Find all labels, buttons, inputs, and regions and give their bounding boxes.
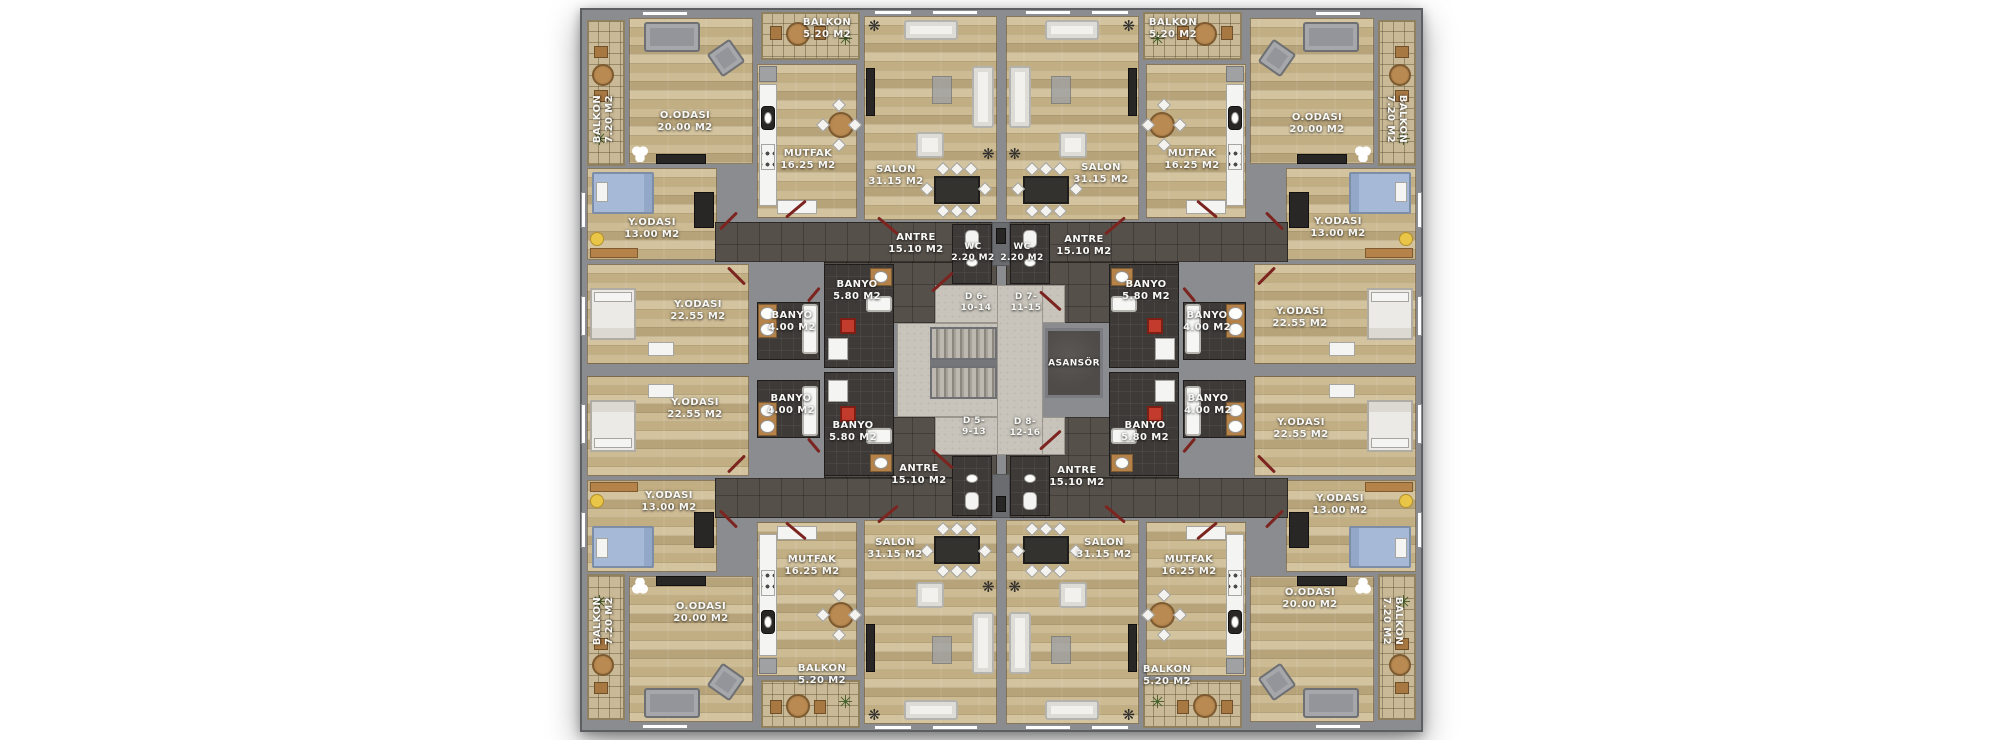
- room-label-bottom-left-balkon-bottom: BALKON5.20 M2: [798, 663, 846, 687]
- room-label-top-right-balkon-top: BALKON5.20 M2: [1149, 17, 1197, 41]
- room-label-bottom-left-y-odasi-13: Y.ODASI13.00 M2: [641, 490, 696, 514]
- room-label-bottom-left-mutfak: MUTFAK16.25 M2: [784, 554, 839, 578]
- room-label-top-left-banyo-58: BANYO5.80 M2: [833, 279, 881, 303]
- room-label-bottom-left-y-odasi-22: Y.ODASI22.55 M2: [667, 397, 722, 421]
- room-label-bottom-left-banyo-40: BANYO4.00 M2: [767, 393, 815, 417]
- room-label-top-left-y-odasi-22: Y.ODASI22.55 M2: [670, 299, 725, 323]
- room-label-bottom-left-salon: SALON31.15 M2: [867, 537, 922, 561]
- room-label-bottom-right-o-odasi: O.ODASI20.00 M2: [1282, 587, 1337, 611]
- room-label-top-right-banyo-58: BANYO5.80 M2: [1122, 279, 1170, 303]
- room-label-bottom-right-antre: ANTRE15.10 M2: [1049, 465, 1104, 489]
- room-label-top-left-balkon-side: BALKON7.20 M2: [592, 95, 616, 143]
- room-label-top-left-y-odasi-13: Y.ODASI13.00 M2: [624, 217, 679, 241]
- room-label-top-left-o-odasi: O.ODASI20.00 M2: [657, 110, 712, 134]
- room-label-top-left-salon: SALON31.15 M2: [868, 164, 923, 188]
- floor-plan: BALKON7.20 M2O.ODASI20.00 M2MUTFAK16.25 …: [580, 8, 1423, 732]
- apartment-door-label-d5: D 5-9-13: [962, 416, 986, 438]
- room-label-top-right-o-odasi: O.ODASI20.00 M2: [1289, 112, 1344, 136]
- room-label-bottom-right-y-odasi-13: Y.ODASI13.00 M2: [1312, 493, 1367, 517]
- room-label-bottom-right-banyo-58: BANYO5.80 M2: [1121, 420, 1169, 444]
- apartment-door-label-d8: D 8-12-16: [1010, 417, 1041, 439]
- apartment-door-label-d7: D 7-11-15: [1011, 292, 1042, 314]
- room-label-bottom-right-balkon-bottom: BALKON5.20 M2: [1143, 664, 1191, 688]
- room-label-top-right-salon: SALON31.15 M2: [1073, 162, 1128, 186]
- room-label-top-left-banyo-40: BANYO4.00 M2: [768, 310, 816, 334]
- room-label-bottom-right-balkon-side: BALKON7.20 M2: [1380, 597, 1404, 645]
- room-label-top-left-balkon-top: BALKON5.20 M2: [803, 17, 851, 41]
- room-label-bottom-left-balkon-side: BALKON7.20 M2: [592, 597, 616, 645]
- page: { "document": { "kind": "apartment-floor…: [0, 0, 2000, 740]
- room-label-bottom-right-salon: SALON31.15 M2: [1076, 537, 1131, 561]
- room-label-top-right-mutfak: MUTFAK16.25 M2: [1164, 148, 1219, 172]
- room-label-top-right-wc: WC2.20 M2: [1000, 242, 1043, 264]
- room-label-bottom-right-y-odasi-22: Y.ODASI22.55 M2: [1273, 417, 1328, 441]
- room-label-bottom-left-antre: ANTRE15.10 M2: [891, 463, 946, 487]
- room-label-bottom-right-banyo-40: BANYO4.00 M2: [1184, 393, 1232, 417]
- label-layer: BALKON7.20 M2O.ODASI20.00 M2MUTFAK16.25 …: [580, 8, 1423, 732]
- room-label-bottom-left-o-odasi: O.ODASI20.00 M2: [673, 601, 728, 625]
- room-label-bottom-left-banyo-58: BANYO5.80 M2: [829, 420, 877, 444]
- room-label-top-right-banyo-40: BANYO4.00 M2: [1183, 310, 1231, 334]
- apartment-door-label-d6: D 6-10-14: [961, 292, 992, 314]
- elevator-label: ASANSÖR: [1048, 359, 1100, 370]
- room-label-top-left-antre: ANTRE15.10 M2: [888, 232, 943, 256]
- room-label-top-left-mutfak: MUTFAK16.25 M2: [780, 148, 835, 172]
- room-label-top-right-antre: ANTRE15.10 M2: [1056, 234, 1111, 258]
- room-label-bottom-right-mutfak: MUTFAK16.25 M2: [1161, 554, 1216, 578]
- room-label-top-right-y-odasi-13: Y.ODASI13.00 M2: [1310, 216, 1365, 240]
- room-label-top-right-y-odasi-22: Y.ODASI22.55 M2: [1272, 306, 1327, 330]
- room-label-top-right-balkon-side: BALKON7.20 M2: [1384, 95, 1408, 143]
- room-label-top-left-wc: WC2.20 M2: [951, 242, 994, 264]
